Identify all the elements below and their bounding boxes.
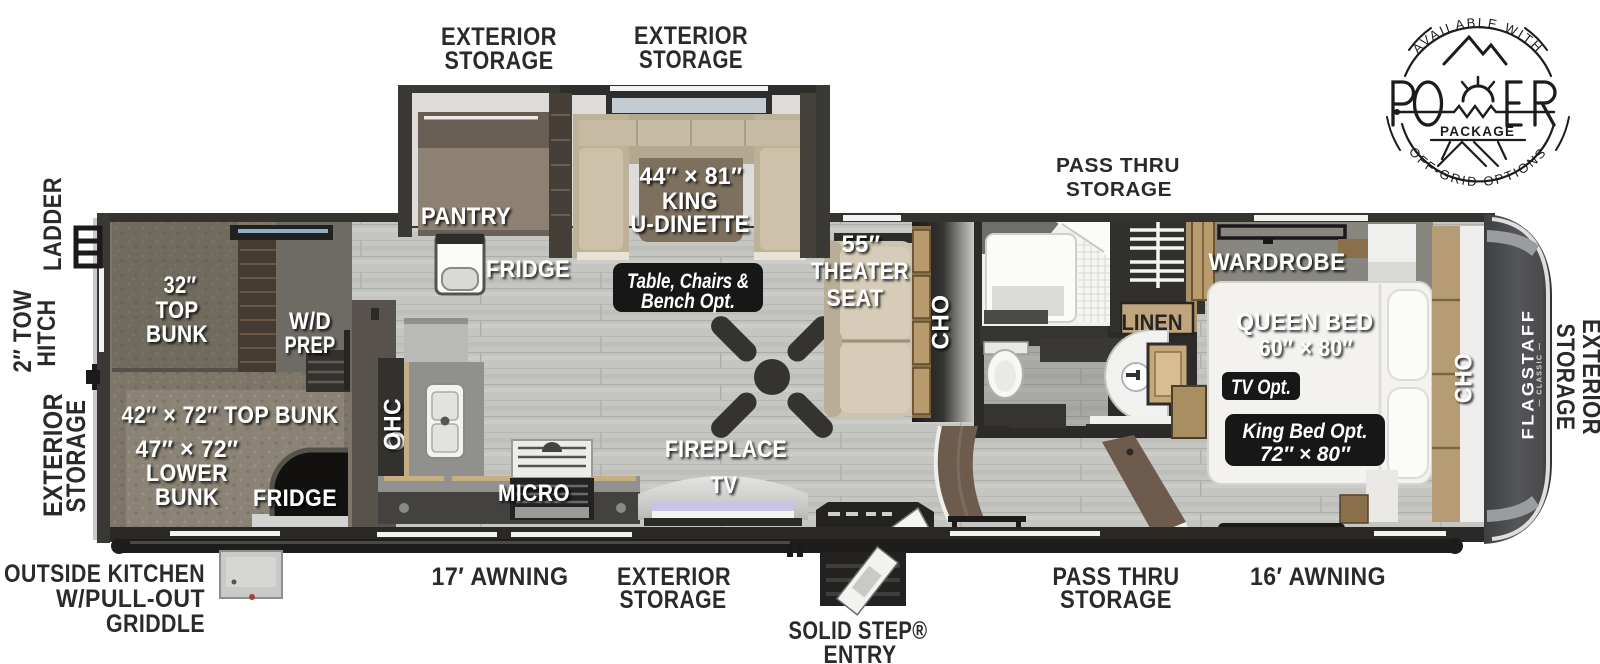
svg-text:CHO: CHO	[1451, 353, 1478, 403]
svg-text:ENTRY: ENTRY	[824, 641, 897, 664]
svg-text:72″ × 80″: 72″ × 80″	[1260, 443, 1351, 466]
svg-text:W/PULL-OUT: W/PULL-OUT	[56, 585, 205, 613]
svg-text:PANTRY: PANTRY	[421, 203, 511, 230]
svg-text:Bench Opt.: Bench Opt.	[641, 290, 735, 313]
svg-text:— CLASSIC —: — CLASSIC —	[1537, 341, 1544, 406]
svg-text:FRIDGE: FRIDGE	[486, 256, 570, 283]
svg-text:STORAGE: STORAGE	[1066, 179, 1172, 201]
svg-text:LINEN: LINEN	[1122, 310, 1183, 335]
svg-text:STORAGE: STORAGE	[620, 586, 727, 614]
svg-text:W/D: W/D	[289, 308, 331, 335]
svg-text:STORAGE: STORAGE	[1060, 586, 1172, 614]
svg-text:FRIDGE: FRIDGE	[253, 485, 337, 512]
svg-text:King Bed Opt.: King Bed Opt.	[1243, 420, 1368, 443]
svg-text:CHO: CHO	[928, 295, 955, 350]
svg-text:LOWER: LOWER	[146, 460, 228, 487]
svg-text:STORAGE: STORAGE	[61, 400, 91, 513]
svg-text:PACKAGE: PACKAGE	[1440, 124, 1518, 139]
svg-text:17′ AWNING: 17′ AWNING	[432, 563, 569, 591]
svg-text:OHC: OHC	[380, 398, 407, 450]
svg-text:EXTERIOR: EXTERIOR	[1577, 319, 1600, 435]
svg-text:THEATER: THEATER	[811, 258, 909, 285]
svg-text:PREP: PREP	[285, 332, 336, 359]
svg-text:U-DINETTE: U-DINETTE	[631, 211, 750, 238]
svg-text:BUNK: BUNK	[146, 321, 208, 348]
svg-text:SEAT: SEAT	[827, 285, 884, 312]
svg-text:55″: 55″	[842, 231, 881, 258]
svg-text:TOP: TOP	[156, 297, 199, 324]
svg-text:FIREPLACE: FIREPLACE	[665, 436, 787, 463]
svg-text:47″ × 72″: 47″ × 72″	[136, 436, 239, 463]
svg-text:GRIDDLE: GRIDDLE	[106, 610, 205, 638]
svg-text:16′ AWNING: 16′ AWNING	[1250, 563, 1386, 591]
svg-text:TV Opt.: TV Opt.	[1231, 376, 1291, 399]
svg-text:FLAGSTAFF: FLAGSTAFF	[1519, 309, 1538, 440]
svg-text:60″ × 80″: 60″ × 80″	[1259, 335, 1353, 362]
svg-text:STORAGE: STORAGE	[639, 46, 743, 74]
svg-text:PASS THRU: PASS THRU	[1056, 155, 1180, 177]
svg-text:32″: 32″	[164, 272, 197, 299]
svg-text:42″ × 72″ TOP BUNK: 42″ × 72″ TOP BUNK	[122, 402, 339, 429]
svg-text:STORAGE: STORAGE	[445, 47, 554, 75]
svg-text:MICRO: MICRO	[498, 480, 570, 507]
svg-text:TV: TV	[711, 472, 738, 499]
svg-text:44″ × 81″: 44″ × 81″	[640, 163, 743, 190]
svg-text:WARDROBE: WARDROBE	[1209, 249, 1346, 276]
svg-text:STORAGE: STORAGE	[1551, 324, 1579, 431]
svg-text:BUNK: BUNK	[155, 484, 219, 511]
svg-text:LADDER: LADDER	[39, 177, 67, 271]
svg-text:OUTSIDE KITCHEN: OUTSIDE KITCHEN	[4, 560, 205, 588]
svg-text:HITCH: HITCH	[33, 300, 61, 367]
svg-text:QUEEN BED: QUEEN BED	[1237, 309, 1374, 336]
